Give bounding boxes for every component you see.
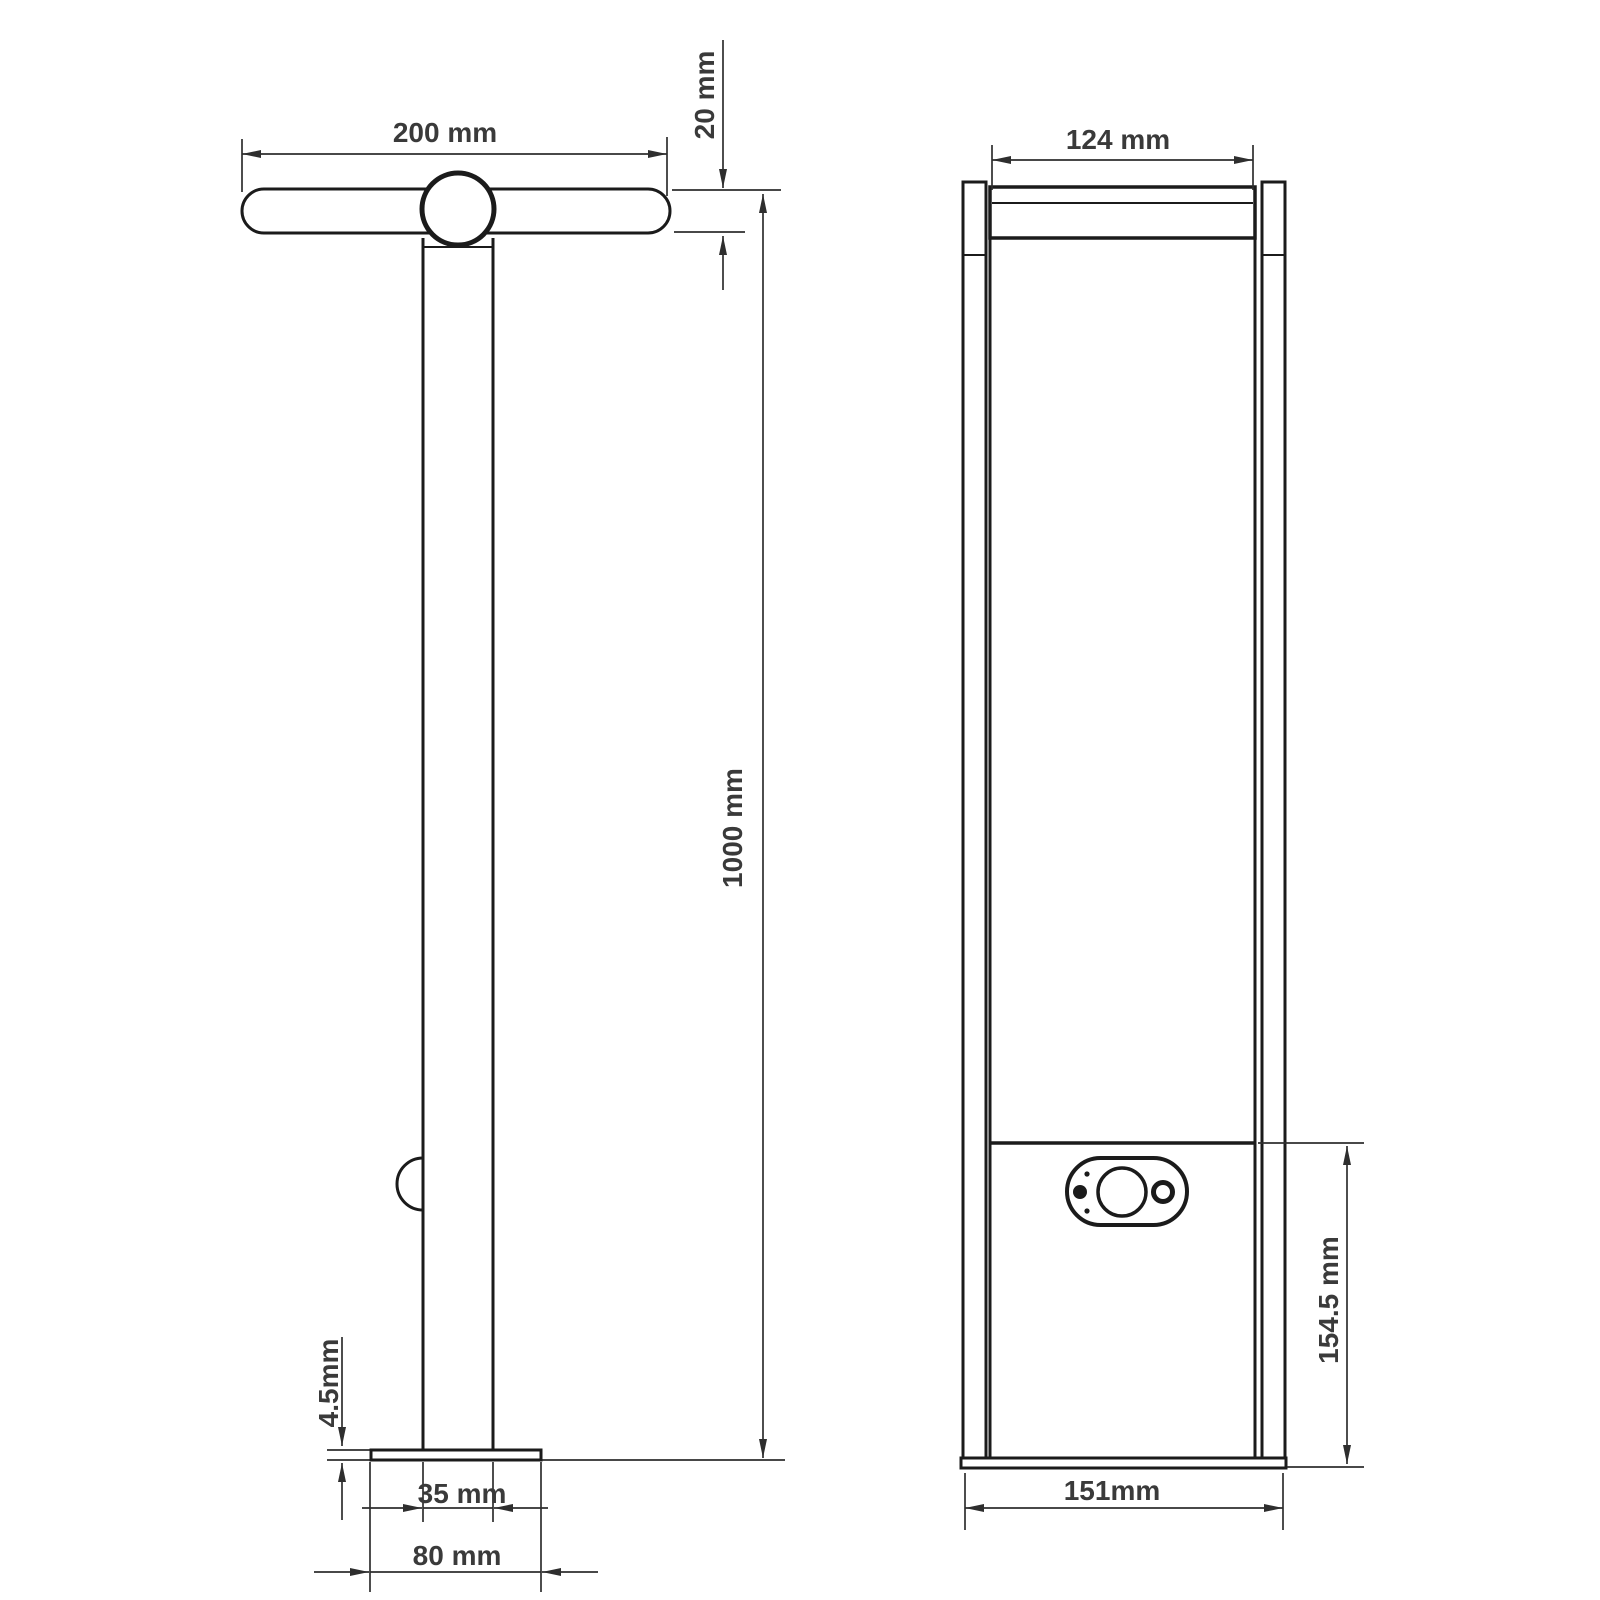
dim-light-bar-width: 124 mm xyxy=(992,124,1253,190)
right-side-post xyxy=(1262,182,1285,1458)
lamp-dimension-drawing: 200 mm 20 mm 1000 mm 4.5mm 3 xyxy=(0,0,1600,1600)
front-view: 124 mm 154.5 mm 151mm xyxy=(961,124,1364,1530)
dim-pole-depth: 35 mm xyxy=(362,1462,548,1522)
dim-label-overall-height: 1000 mm xyxy=(717,768,748,888)
base-plate-side xyxy=(371,1450,541,1460)
control-panel xyxy=(1067,1158,1187,1225)
technical-drawing-page: 200 mm 20 mm 1000 mm 4.5mm 3 xyxy=(0,0,1600,1600)
dim-label-body-width: 151mm xyxy=(1064,1475,1161,1506)
dim-label-base-plate-depth: 80 mm xyxy=(413,1540,502,1571)
dim-label-bar-length: 200 mm xyxy=(393,117,497,148)
lamp-head-front xyxy=(990,187,1255,238)
side-view: 200 mm 20 mm 1000 mm 4.5mm 3 xyxy=(242,40,785,1592)
sensor-knob-side xyxy=(397,1158,423,1210)
dim-label-control-section-height: 154.5 mm xyxy=(1313,1236,1344,1364)
screw-dot-top xyxy=(1084,1171,1089,1176)
dim-body-width: 151mm xyxy=(965,1473,1283,1530)
left-side-post xyxy=(963,182,986,1458)
ir-sensor-dot xyxy=(1073,1185,1087,1199)
dim-overall-height: 1000 mm xyxy=(717,194,763,1458)
dim-label-pole-depth: 35 mm xyxy=(418,1478,507,1509)
screw-dot-bottom xyxy=(1084,1208,1089,1213)
dim-label-bar-thickness: 20 mm xyxy=(689,51,720,140)
base-plate-front xyxy=(961,1458,1286,1468)
pivot-joint-circle xyxy=(422,173,494,245)
dim-label-light-bar-width: 124 mm xyxy=(1066,124,1170,155)
dim-base-plate-thickness: 4.5mm xyxy=(313,1337,344,1520)
dim-bar-thickness: 20 mm xyxy=(672,40,781,290)
dim-label-base-plate-thickness: 4.5mm xyxy=(313,1339,344,1428)
